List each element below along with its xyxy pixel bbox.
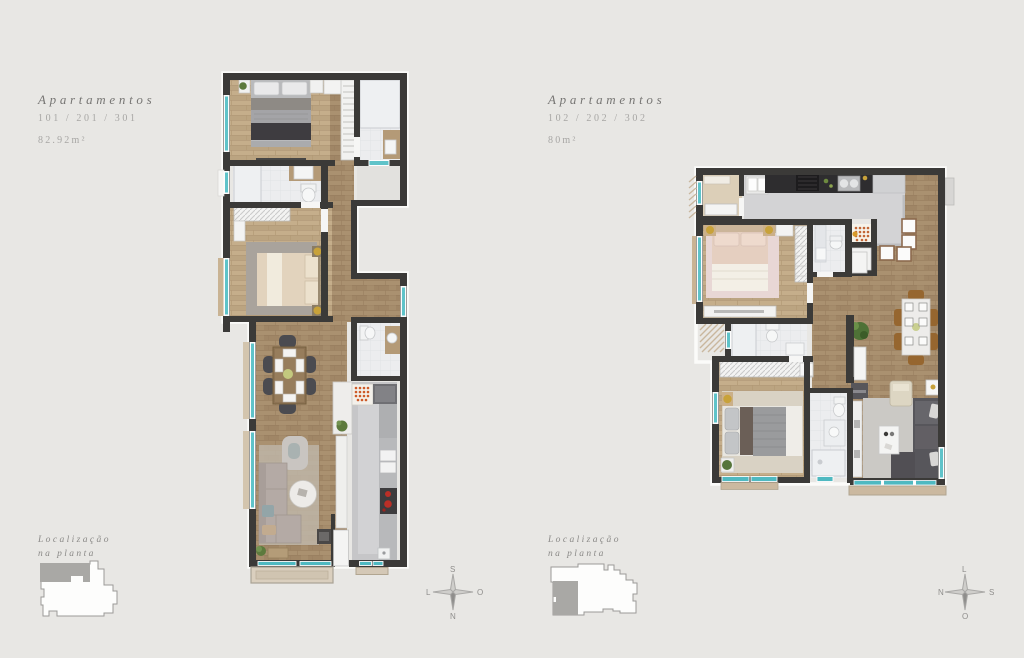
svg-text:L: L xyxy=(962,565,967,574)
svg-text:na planta: na planta xyxy=(38,549,96,559)
svg-text:O: O xyxy=(962,612,968,621)
svg-text:102 / 202 / 302: 102 / 202 / 302 xyxy=(548,113,648,124)
svg-text:Localização: Localização xyxy=(37,535,111,545)
svg-text:O: O xyxy=(477,588,483,597)
svg-text:S: S xyxy=(989,588,994,597)
svg-text:na planta: na planta xyxy=(548,549,606,559)
svg-text:S: S xyxy=(450,565,455,574)
svg-text:L: L xyxy=(426,588,431,597)
svg-text:Apartamentos: Apartamentos xyxy=(547,92,665,107)
svg-text:80m²: 80m² xyxy=(548,135,578,146)
svg-text:82.92m²: 82.92m² xyxy=(38,135,87,146)
svg-text:N: N xyxy=(450,612,456,621)
svg-text:Apartamentos: Apartamentos xyxy=(37,92,155,107)
svg-text:N: N xyxy=(938,588,944,597)
svg-text:Localização: Localização xyxy=(547,535,621,545)
svg-text:101 / 201 / 301: 101 / 201 / 301 xyxy=(38,113,138,124)
